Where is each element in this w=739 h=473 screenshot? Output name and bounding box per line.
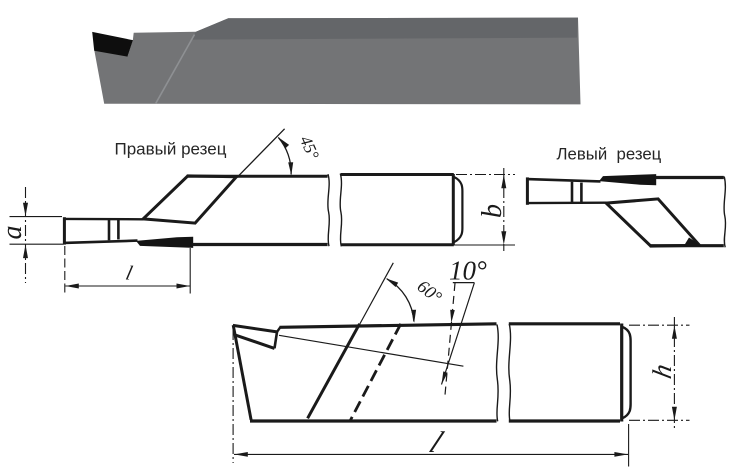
svg-text:b: b: [477, 204, 508, 218]
svg-text:Левый резец: Левый резец: [557, 145, 662, 164]
svg-text:a: a: [0, 226, 28, 240]
svg-text:Правый резец: Правый резец: [115, 140, 227, 159]
svg-text:10°: 10°: [449, 256, 487, 286]
